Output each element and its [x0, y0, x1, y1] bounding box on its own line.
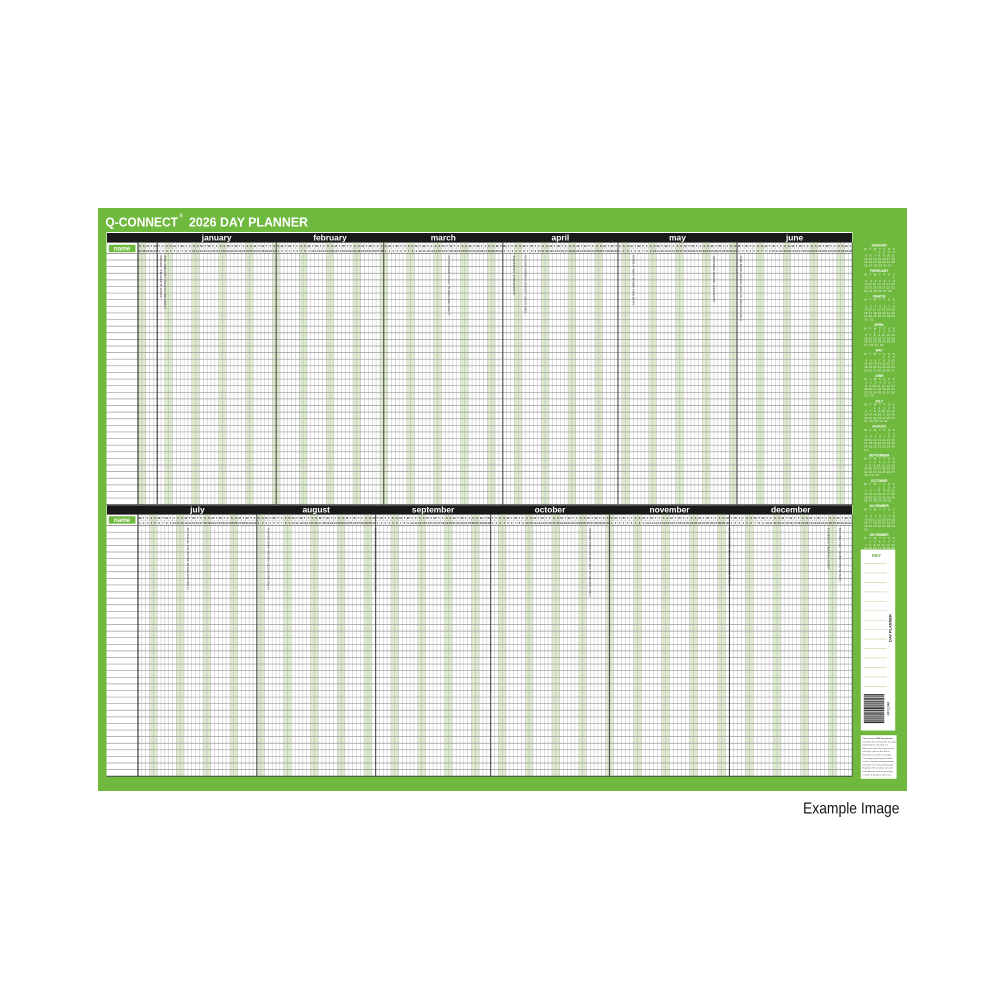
svg-text:2026 DAY PLANNER: 2026 DAY PLANNER: [189, 214, 308, 229]
svg-text:BOXING DAY (SUBSTITUTE DAY): BOXING DAY (SUBSTITUTE DAY): [838, 528, 842, 582]
svg-text:ST PATRICK'S DAY (N.IRELAND ON: ST PATRICK'S DAY (N.IRELAND ONLY): [447, 255, 451, 315]
svg-text:26 27 28 29 30 31: 26 27 28 29 30 31: [864, 263, 894, 267]
svg-text:to walls or partitions with ea: to walls or partitions with ease.: [863, 773, 893, 776]
svg-text:name: name: [114, 517, 131, 524]
svg-text:BATTLE OF THE BOYNE (N.IRELAND: BATTLE OF THE BOYNE (N.IRELAND ONLY): [186, 528, 190, 590]
svg-text:a clear overview of appointmen: a clear overview of appointments: [863, 760, 894, 763]
svg-text:NEW YEAR'S DAY: NEW YEAR'S DAY: [159, 255, 163, 298]
svg-text:29 30: 29 30: [864, 394, 894, 398]
svg-text:name: name: [114, 246, 131, 253]
svg-text:self adhesive pads for mountin: self adhesive pads for mounting: [863, 770, 894, 773]
svg-text:Q-CONNECT: Q-CONNECT: [105, 214, 178, 229]
svg-text:the week or month as needed.: the week or month as needed.: [863, 754, 892, 757]
svg-text:30 31: 30 31: [864, 318, 894, 322]
svg-text:25 26 27 28 29 30 31: 25 26 27 28 29 30 31: [864, 368, 895, 372]
svg-text:SPRING BANK HOLIDAY: SPRING BANK HOLIDAY: [712, 255, 716, 302]
svg-text:october: october: [535, 504, 566, 514]
svg-text:may: may: [669, 232, 686, 242]
svg-text:september: september: [412, 504, 455, 514]
svg-text:OCTOBER BANK HOLIDAY (REP. OF: OCTOBER BANK HOLIDAY (REP. OF IRELAND ON…: [588, 528, 592, 597]
svg-text:ST ANDREW'S DAY (SCOTLAND ONLY: ST ANDREW'S DAY (SCOTLAND ONLY): [727, 528, 731, 586]
svg-text:31: 31: [864, 448, 894, 452]
svg-text:KEY: KEY: [872, 553, 881, 558]
svg-text:EASTER MONDAY (EXCEPT SCOTLAND: EASTER MONDAY (EXCEPT SCOTLAND): [524, 255, 528, 313]
svg-text:27 28 29 30: 27 28 29 30: [864, 343, 894, 347]
svg-text:26 27 28 29 30 31: 26 27 28 29 30 31: [864, 499, 894, 503]
svg-text:JUNE BANK HOLIDAY (REP. OF IRE: JUNE BANK HOLIDAY (REP. OF IRELAND ONLY): [739, 255, 743, 321]
svg-text:30: 30: [864, 527, 894, 531]
svg-text:Example Image: Example Image: [803, 801, 900, 818]
svg-text:SUMMER BANK HOLIDAY (SCOTLAND: SUMMER BANK HOLIDAY (SCOTLAND ONLY): [266, 528, 270, 590]
svg-text:november: november: [649, 504, 690, 514]
svg-text:2ND JANUARY (SCOTLAND ONLY): 2ND JANUARY (SCOTLAND ONLY): [163, 255, 167, 309]
svg-text:SUMMER BANK HOLIDAY (EXCEPT SC: SUMMER BANK HOLIDAY (EXCEPT SCOTLAND): [374, 528, 378, 591]
svg-text:KF01946: KF01946: [887, 702, 891, 716]
svg-text:july: july: [189, 504, 205, 514]
svg-text:27 28 29 30 31: 27 28 29 30 31: [864, 419, 894, 423]
svg-text:The unique grid layout provide: The unique grid layout provides: [863, 757, 893, 760]
svg-text:and wipe clean at the end of: and wipe clean at the end of: [863, 750, 890, 753]
svg-text:december: december: [771, 504, 811, 514]
svg-text:28 29 30: 28 29 30: [864, 473, 894, 477]
svg-text:april: april: [552, 232, 570, 242]
svg-text:Write on it with a dry wipe ma: Write on it with a dry wipe marker: [863, 747, 895, 750]
svg-text:23 24 25 26 27 28: 23 24 25 26 27 28: [864, 289, 894, 293]
svg-text:august: august: [302, 504, 330, 514]
svg-text:laminated for repeated use.: laminated for repeated use.: [863, 744, 889, 747]
svg-text:Year to view 2026 day planner: Year to view 2026 day planner: [863, 737, 894, 740]
svg-text:june: june: [785, 232, 804, 242]
svg-text:®: ®: [179, 213, 183, 220]
svg-text:january: january: [201, 232, 232, 242]
svg-text:CHRISTMAS DAY: CHRISTMAS DAY: [826, 528, 830, 570]
svg-text:mounted: this wall planner has: mounted: this wall planner has been: [863, 740, 898, 743]
svg-text:february: february: [313, 232, 347, 242]
svg-text:DAY PLANNER: DAY PLANNER: [887, 614, 892, 642]
svg-text:march: march: [431, 232, 456, 242]
svg-text:GOOD FRIDAY: GOOD FRIDAY: [512, 255, 516, 295]
svg-text:and tasks for every working da: and tasks for every working day.: [863, 763, 894, 766]
svg-text:Supplied with a marker pen and: Supplied with a marker pen and: [863, 767, 894, 770]
svg-text:EARLY MAY BANK HOLIDAY: EARLY MAY BANK HOLIDAY: [631, 255, 635, 305]
